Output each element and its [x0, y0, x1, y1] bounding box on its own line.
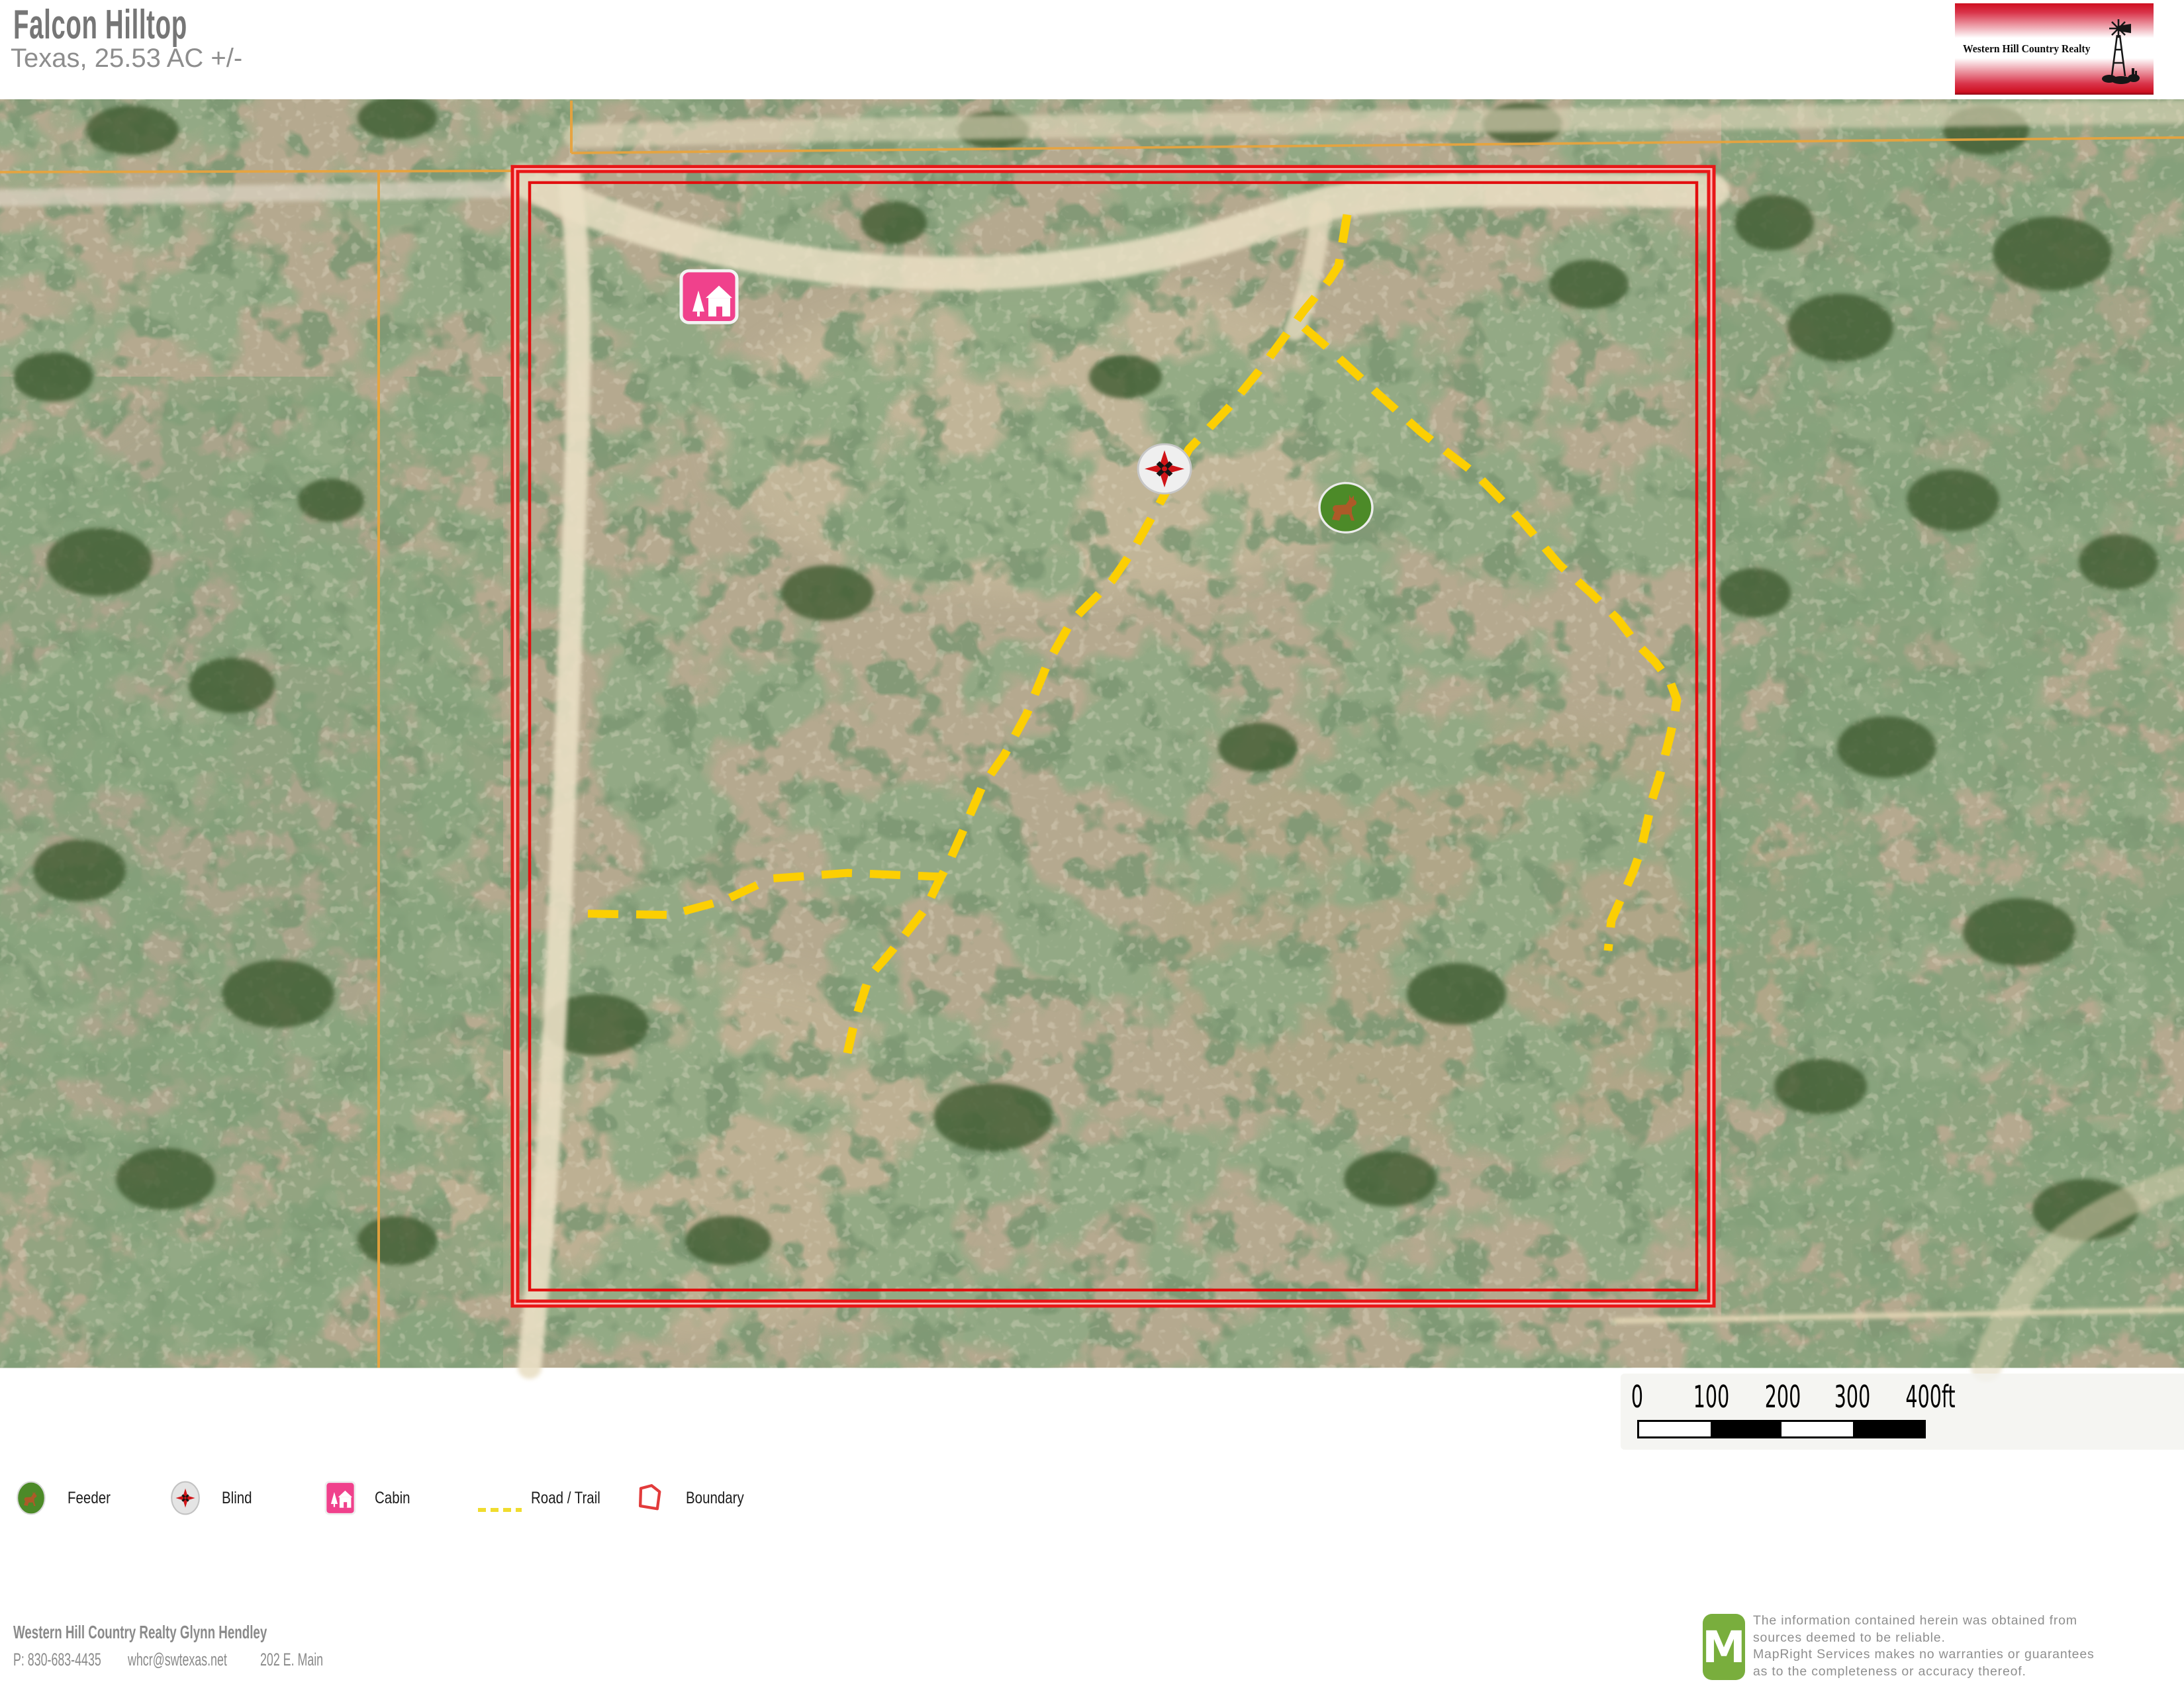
disclaimer-line: The information contained herein was obt… — [1753, 1613, 2184, 1630]
satellite-map: 0 100 200 300 400ft — [0, 99, 2184, 1460]
disclaimer-line: sources deemed to be reliable. — [1753, 1630, 2184, 1647]
disclaimer-text: The information contained herein was obt… — [1753, 1613, 2184, 1680]
feeder-marker — [1319, 483, 1372, 533]
scale-label-0: 0 — [1631, 1379, 1643, 1415]
page-title: Falcon Hilltop — [13, 1, 187, 48]
scale-bar: 0 100 200 300 400ft — [1621, 1374, 2184, 1450]
legend-label-cabin: Cabin — [375, 1489, 410, 1508]
brokerage-logo: Western Hill Country Realty — [1955, 3, 2154, 95]
scale-label-300: 300 — [1834, 1379, 1870, 1415]
scale-label-200: 200 — [1765, 1379, 1801, 1415]
blind-icon — [171, 1481, 200, 1515]
disclaimer-line: MapRight Services makes no warranties or… — [1753, 1646, 2184, 1664]
mapright-logo: M — [1703, 1614, 1745, 1680]
brokerage-logo-text: Western Hill Country Realty — [1963, 42, 2090, 56]
mapright-monogram: M — [1702, 1622, 1746, 1673]
legend-label-blind: Blind — [222, 1489, 252, 1508]
boundary-icon — [633, 1481, 665, 1515]
legend-label-boundary: Boundary — [686, 1489, 744, 1508]
cabin-marker — [681, 271, 737, 322]
map-export-page: Falcon Hilltop Texas, 25.53 AC +/- Weste… — [0, 0, 2184, 1688]
legend-label-feeder: Feeder — [68, 1489, 111, 1508]
scale-label-400ft: 400ft — [1905, 1379, 1955, 1415]
scale-strip — [1637, 1420, 1926, 1438]
phone-number: P: 830-683-4435 — [13, 1650, 101, 1670]
cabin-icon — [324, 1481, 356, 1515]
windmill-icon — [2101, 15, 2142, 84]
street-address: 202 E. Main — [260, 1650, 323, 1670]
road-trail-icon — [478, 1493, 522, 1527]
company-agent-line: Western Hill Country Realty Glynn Hendle… — [13, 1622, 267, 1643]
blind-marker — [1138, 444, 1191, 494]
legend-label-road-trail: Road / Trail — [531, 1489, 600, 1508]
email-address: whcr@swtexas.net — [128, 1650, 227, 1670]
feeder-icon — [17, 1481, 46, 1515]
scale-label-100: 100 — [1693, 1379, 1729, 1415]
page-subtitle: Texas, 25.53 AC +/- — [11, 44, 242, 73]
disclaimer-line: as to the completeness or accuracy there… — [1753, 1664, 2184, 1681]
